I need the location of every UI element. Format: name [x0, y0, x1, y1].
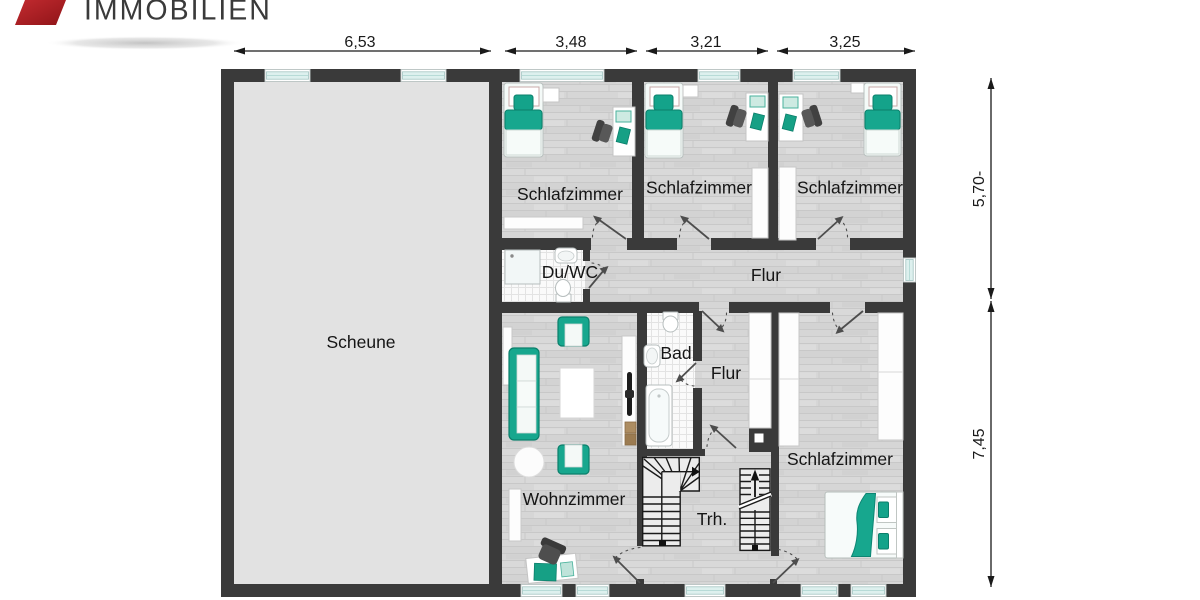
- svg-text:Du/WC: Du/WC: [542, 262, 598, 282]
- svg-text:5,70-: 5,70-: [971, 171, 988, 207]
- svg-text:6,53: 6,53: [344, 34, 375, 51]
- svg-text:Wohnzimmer: Wohnzimmer: [523, 489, 626, 509]
- svg-text:7,45: 7,45: [971, 428, 988, 459]
- svg-text:3,48: 3,48: [555, 34, 586, 51]
- svg-text:Flur: Flur: [751, 265, 781, 285]
- svg-text:3,25: 3,25: [829, 34, 860, 51]
- svg-text:3,21: 3,21: [690, 34, 721, 51]
- svg-text:Scheune: Scheune: [326, 332, 395, 352]
- svg-text:Schlafzimmer: Schlafzimmer: [517, 184, 623, 204]
- svg-text:Bad: Bad: [660, 343, 691, 363]
- svg-text:Trh.: Trh.: [697, 509, 727, 529]
- svg-text:Flur: Flur: [711, 363, 741, 383]
- svg-text:Schlafzimmer: Schlafzimmer: [646, 178, 752, 198]
- svg-text:IMMOBILIEN: IMMOBILIEN: [84, 0, 272, 27]
- svg-text:Schlafzimmer: Schlafzimmer: [787, 449, 893, 469]
- svg-text:Schlafzimmer: Schlafzimmer: [797, 178, 903, 198]
